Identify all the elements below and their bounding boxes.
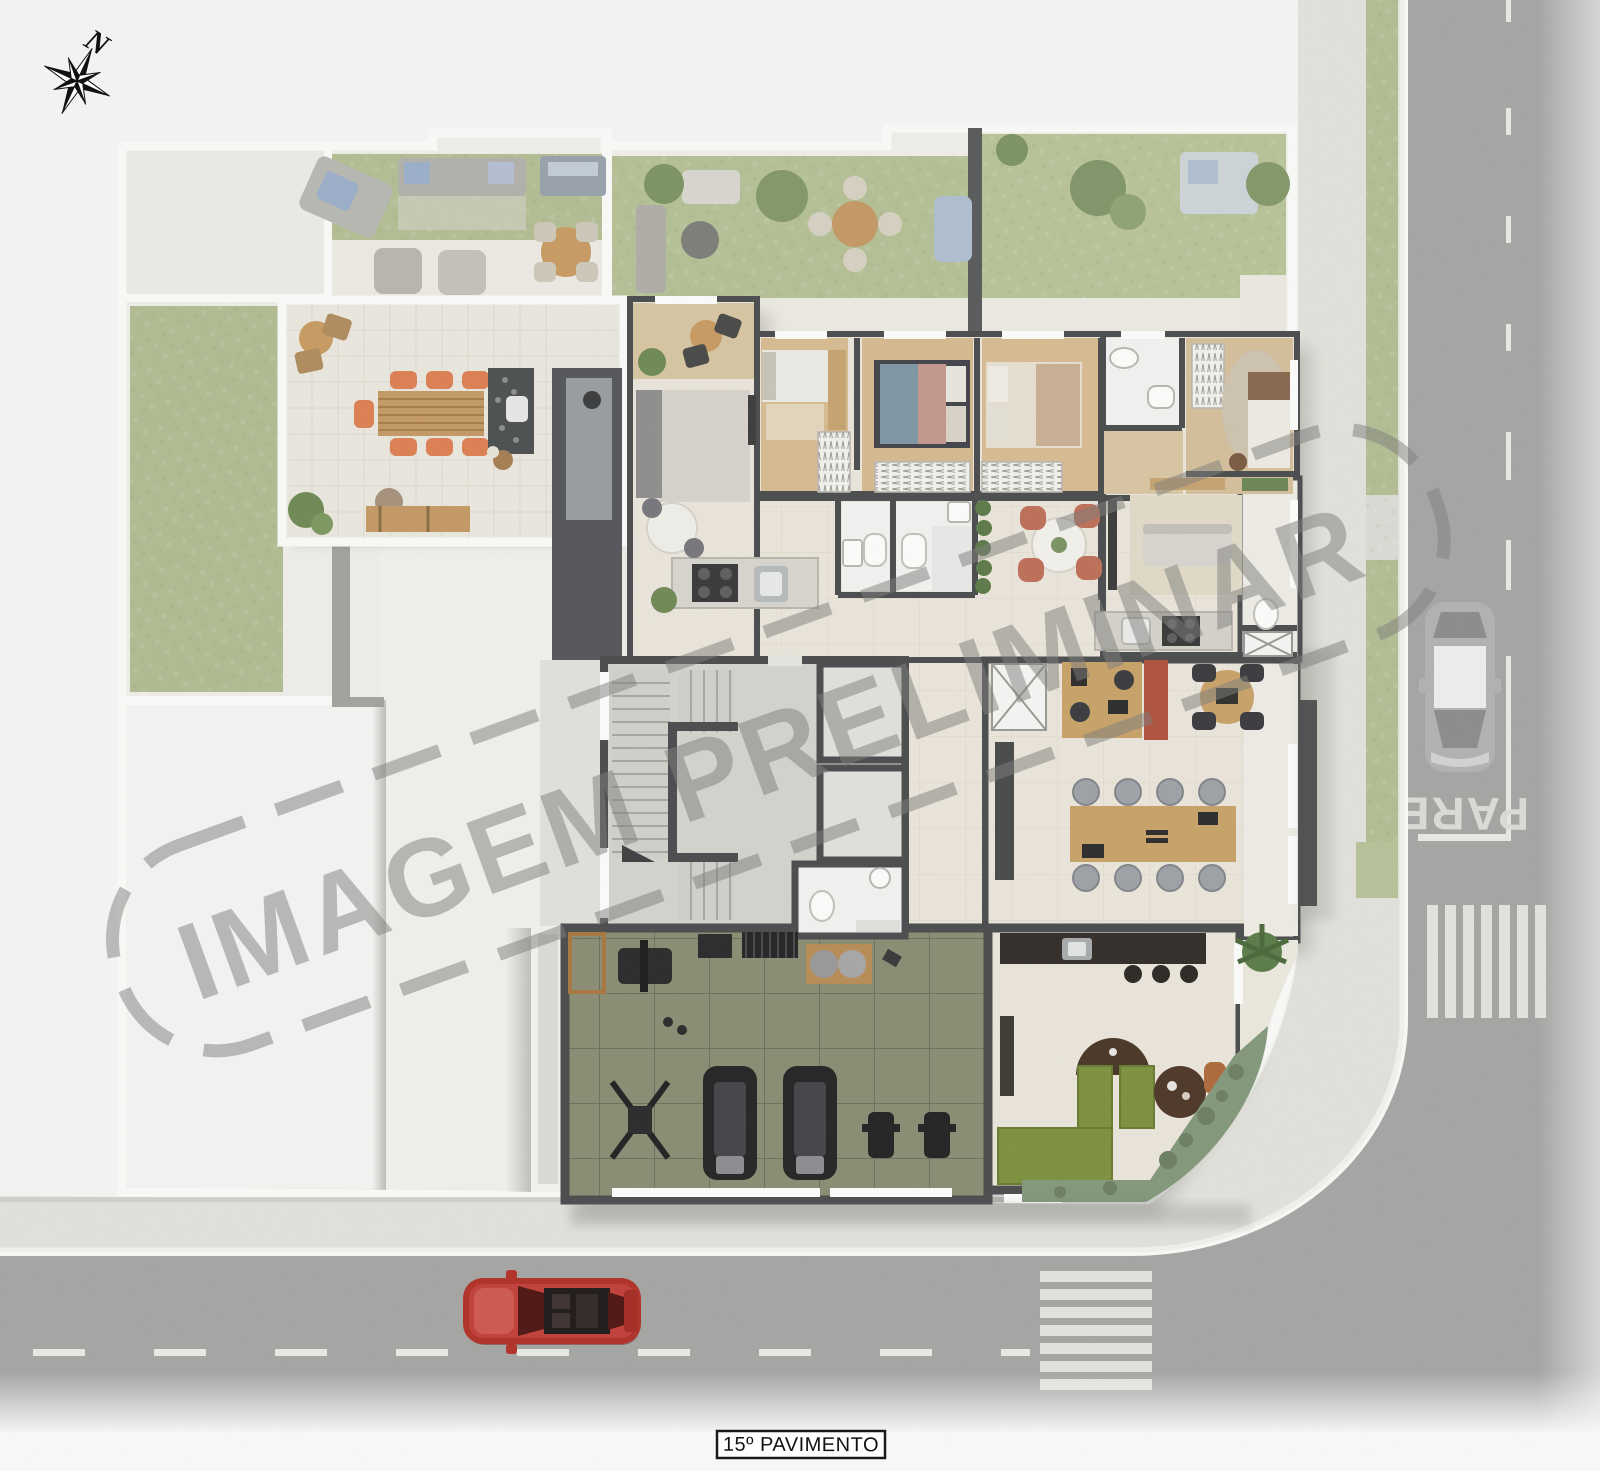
svg-text:15º PAVIMENTO: 15º PAVIMENTO (723, 1434, 879, 1457)
